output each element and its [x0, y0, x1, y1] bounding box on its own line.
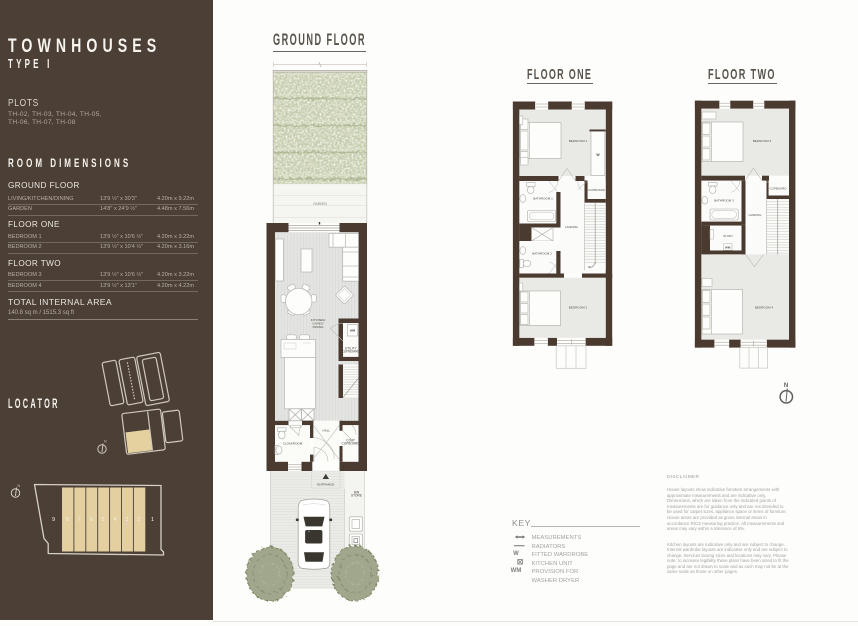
- svg-text:5: 5: [102, 517, 105, 523]
- svg-text:3: 3: [125, 517, 128, 523]
- svg-text:BEDROOM 3: BEDROOM 3: [753, 139, 772, 143]
- svg-text:CUPBOARD: CUPBOARD: [342, 442, 361, 446]
- svg-text:2: 2: [137, 517, 140, 523]
- svg-text:BEDROOM 1: BEDROOM 1: [569, 139, 588, 143]
- svg-text:N: N: [784, 383, 788, 389]
- svg-text:BEDROOM 2: BEDROOM 2: [569, 306, 588, 310]
- svg-text:WM: WM: [350, 329, 356, 333]
- svg-text:BATHROOM 2: BATHROOM 2: [532, 252, 552, 256]
- svg-text:BATHROOM 3: BATHROOM 3: [714, 199, 734, 203]
- svg-text:LANDING: LANDING: [565, 225, 579, 229]
- svg-text:CLOAKROOM: CLOAKROOM: [283, 442, 303, 446]
- svg-text:9: 9: [52, 517, 55, 523]
- svg-text:8: 8: [66, 517, 69, 523]
- svg-text:BEDROOM 4: BEDROOM 4: [755, 306, 774, 310]
- svg-text:7: 7: [78, 517, 81, 523]
- svg-text:1: 1: [151, 517, 154, 523]
- svg-text:4: 4: [113, 517, 116, 523]
- svg-text:DINING: DINING: [313, 325, 324, 329]
- svg-text:CUPBOARD: CUPBOARD: [588, 188, 606, 192]
- svg-text:GARDEN: GARDEN: [313, 202, 327, 206]
- svg-text:6: 6: [90, 517, 93, 523]
- svg-text:STUDY: STUDY: [723, 234, 733, 238]
- svg-text:ENTRANCE: ENTRANCE: [317, 483, 334, 487]
- svg-text:CUPBOARD: CUPBOARD: [342, 350, 361, 354]
- svg-text:BATHROOM 1: BATHROOM 1: [533, 197, 553, 201]
- svg-text:HALL: HALL: [323, 429, 331, 433]
- svg-text:STORE: STORE: [351, 494, 362, 498]
- svg-text:LANDING: LANDING: [749, 213, 763, 217]
- svg-text:N: N: [18, 484, 21, 488]
- svg-text:N: N: [104, 440, 107, 444]
- svg-text:CUPBOARD: CUPBOARD: [769, 187, 787, 191]
- svg-text:WM: WM: [725, 245, 731, 249]
